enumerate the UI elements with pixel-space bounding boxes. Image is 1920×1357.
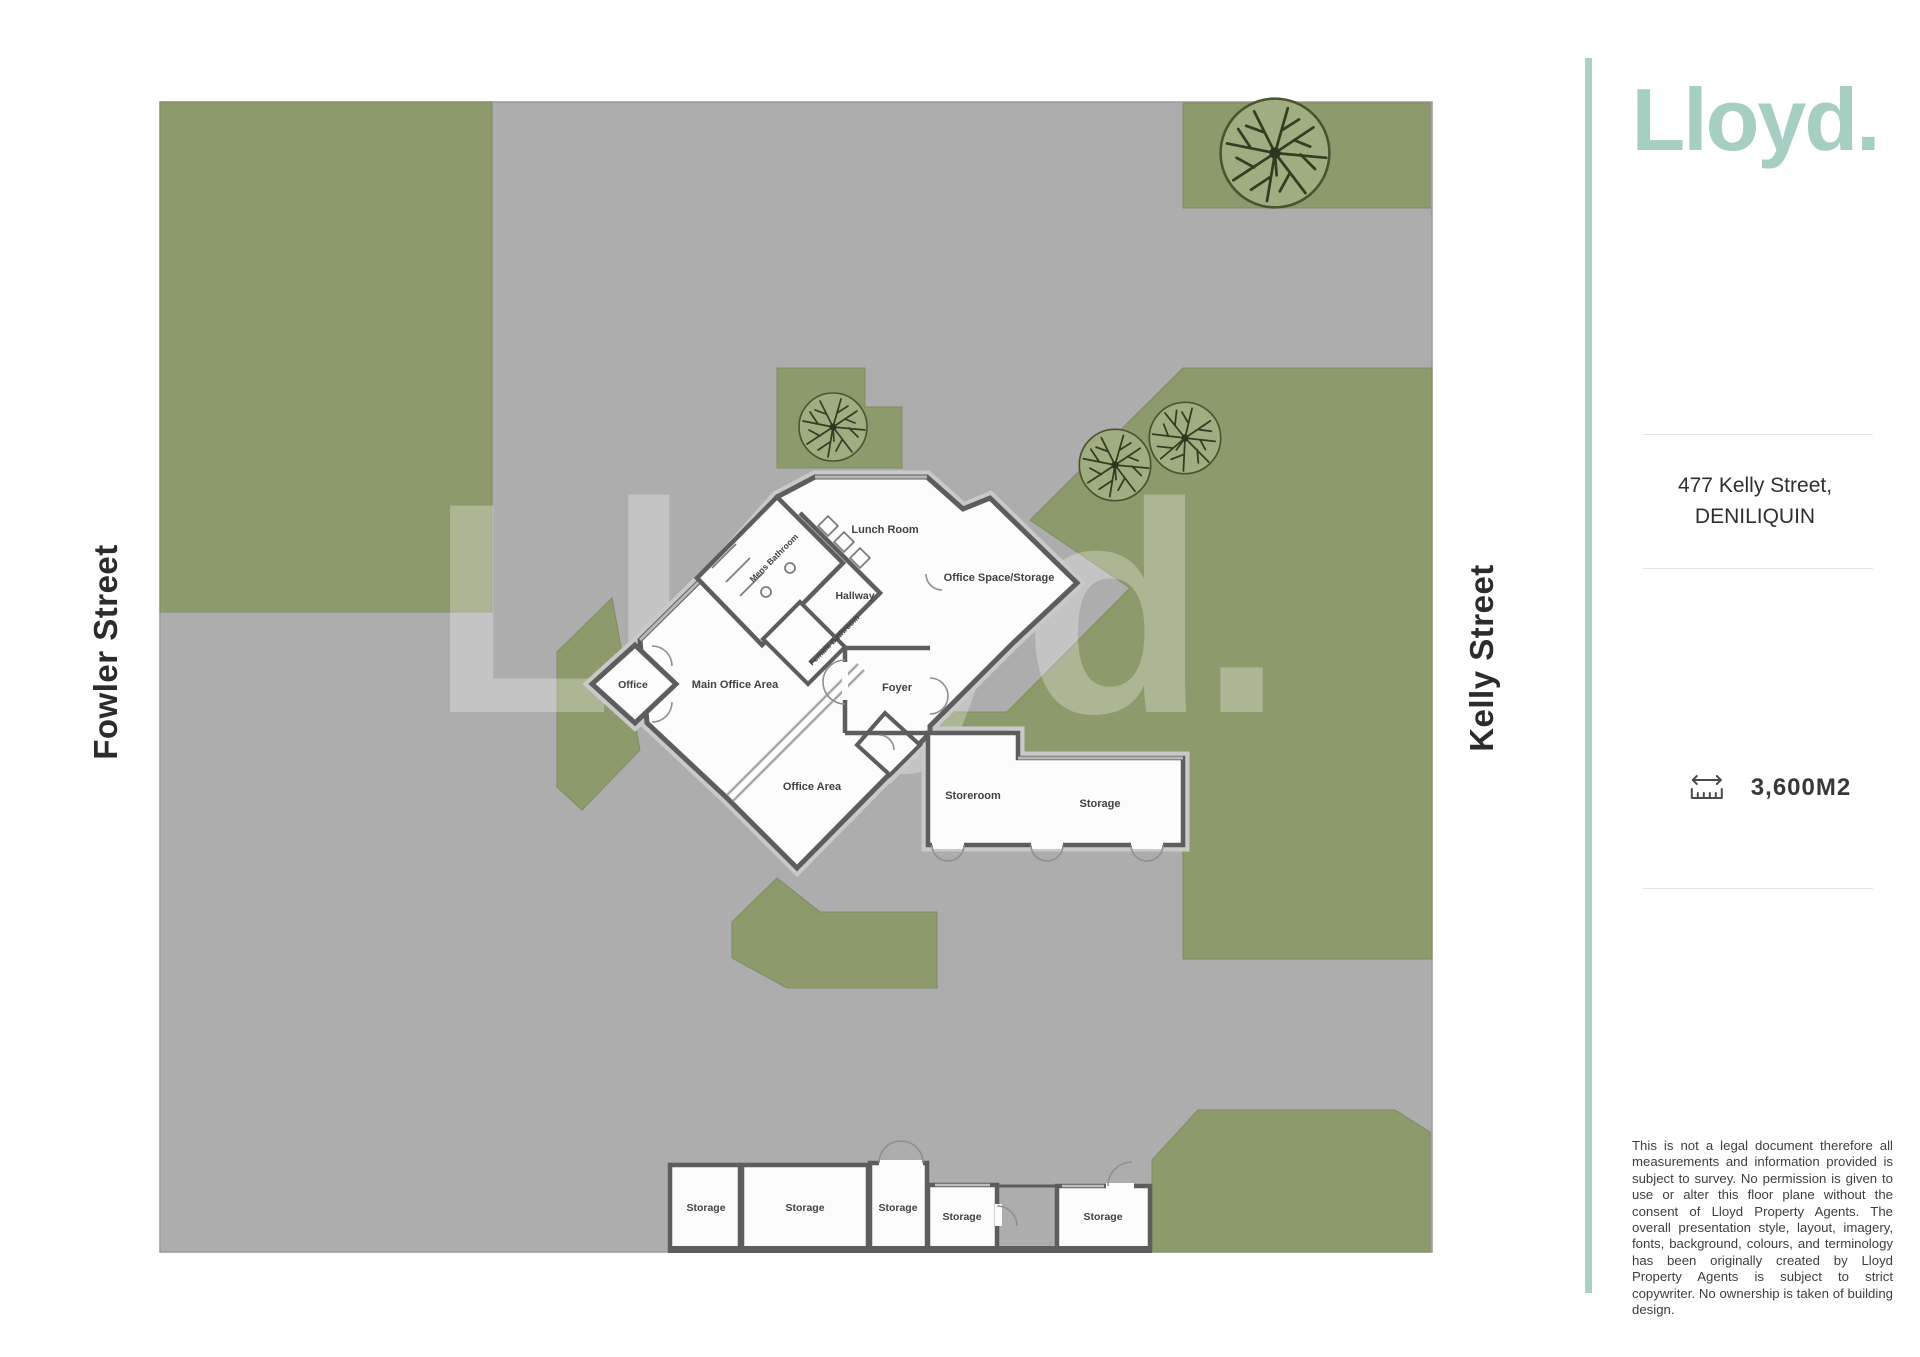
- sidebar-divider: [1643, 888, 1873, 889]
- label-storage-3: Storage: [878, 1202, 917, 1214]
- label-hallway: Hallway: [835, 590, 874, 602]
- label-foyer: Foyer: [882, 682, 913, 694]
- label-main-office-area: Main Office Area: [692, 679, 779, 691]
- land-area-icon: [1689, 774, 1725, 802]
- street-label-fowler: Fowler Street: [87, 544, 125, 760]
- sidebar-divider: [1643, 434, 1873, 435]
- address-line-2: DENILIQUIN: [1678, 501, 1832, 532]
- label-storeroom: Storeroom: [945, 790, 1001, 802]
- property-address: 477 Kelly Street, DENILIQUIN: [1678, 470, 1832, 532]
- sidebar-accent-divider: [1585, 58, 1592, 1293]
- label-storage-4: Storage: [942, 1211, 981, 1223]
- label-office-space-storage: Office Space/Storage: [944, 572, 1055, 584]
- street-label-kelly: Kelly Street: [1463, 564, 1501, 752]
- land-area-value: 3,600M2: [1751, 774, 1851, 802]
- label-storage-mid: Storage: [1080, 798, 1121, 810]
- tree-icon: [1079, 429, 1150, 500]
- label-lunch-room: Lunch Room: [851, 524, 918, 536]
- site-plan: Lloyd.: [0, 0, 1560, 1357]
- label-storage-5: Storage: [1083, 1211, 1122, 1223]
- label-office-area: Office Area: [783, 781, 842, 793]
- tree-icon: [799, 393, 867, 461]
- land-area-row: 3,600M2: [1689, 774, 1851, 802]
- label-office: Office: [618, 679, 648, 691]
- disclaimer-text: This is not a legal document therefore a…: [1632, 1138, 1893, 1318]
- label-storage-1: Storage: [686, 1202, 725, 1214]
- floor-plan-page: Lloyd.: [0, 0, 1920, 1357]
- sidebar-divider: [1643, 568, 1873, 569]
- tree-icon: [1221, 99, 1330, 208]
- grass-bottom-right: [1152, 1110, 1430, 1252]
- address-line-1: 477 Kelly Street,: [1678, 470, 1832, 501]
- brand-logo: Lloyd.: [1631, 69, 1878, 171]
- label-storage-2: Storage: [785, 1202, 824, 1214]
